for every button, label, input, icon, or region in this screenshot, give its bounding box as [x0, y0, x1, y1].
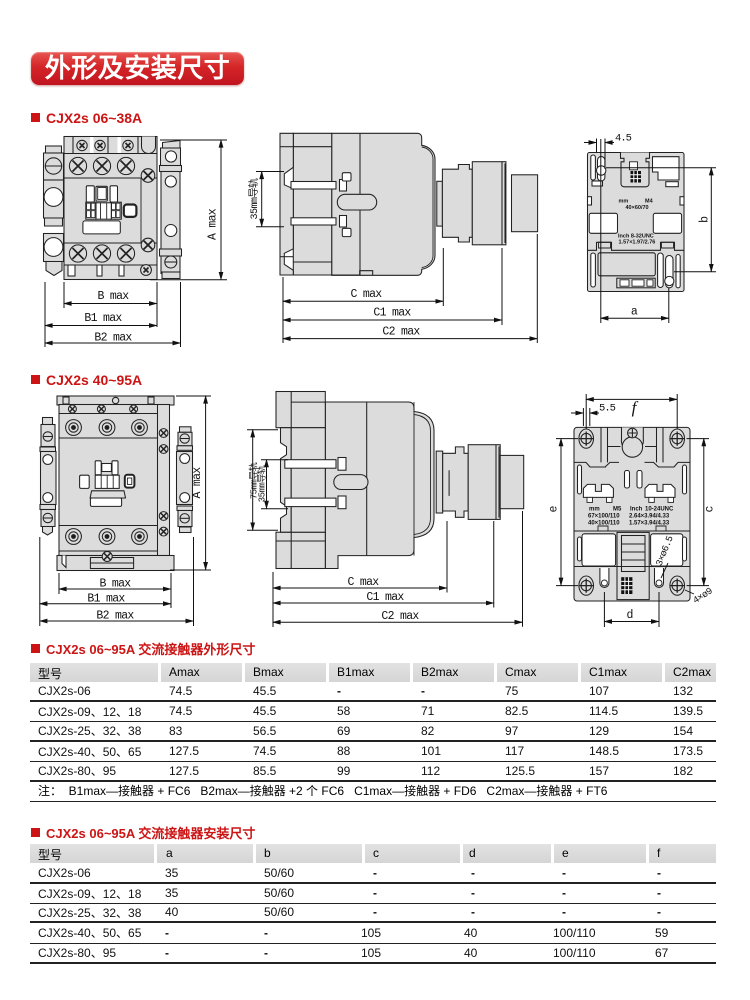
svg-text:B max: B max	[97, 290, 129, 303]
svg-text:35mm导轨: 35mm导轨	[248, 178, 261, 220]
svg-text:B max: B max	[99, 578, 131, 591]
svg-text:10-24UNC: 10-24UNC	[645, 507, 674, 513]
svg-text:67×100/110: 67×100/110	[588, 514, 620, 520]
svg-text:40×60/70: 40×60/70	[626, 205, 649, 211]
svg-text:35mm导轨: 35mm导轨	[256, 465, 268, 502]
svg-text:f: f	[632, 398, 639, 417]
svg-text:4.5: 4.5	[615, 133, 632, 145]
svg-text:A max: A max	[207, 208, 220, 240]
svg-text:5.5: 5.5	[599, 403, 616, 415]
svg-text:a: a	[631, 306, 638, 319]
svg-text:d: d	[627, 609, 634, 622]
svg-text:2.64×3.94/4.33: 2.64×3.94/4.33	[629, 514, 670, 520]
svg-text:mm: mm	[619, 199, 629, 205]
svg-text:C2 max: C2 max	[381, 610, 419, 623]
svg-text:A max: A max	[191, 467, 204, 499]
svg-text:c: c	[704, 505, 717, 512]
svg-text:C1 max: C1 max	[366, 591, 404, 604]
svg-text:mm: mm	[589, 507, 600, 513]
svg-text:B1 max: B1 max	[84, 312, 122, 325]
svg-text:B2 max: B2 max	[96, 610, 134, 623]
svg-text:Inch: Inch	[630, 507, 643, 513]
svg-text:1.57×1.97/2.76: 1.57×1.97/2.76	[619, 240, 656, 246]
svg-text:B1 max: B1 max	[87, 592, 125, 605]
svg-text:C max: C max	[347, 576, 379, 589]
svg-text:e: e	[548, 505, 561, 512]
svg-text:B2 max: B2 max	[94, 332, 132, 345]
svg-text:b: b	[699, 216, 712, 223]
svg-text:M4: M4	[645, 199, 654, 205]
svg-text:C1 max: C1 max	[373, 307, 411, 320]
svg-text:C2 max: C2 max	[382, 325, 420, 338]
svg-text:M5: M5	[613, 507, 622, 513]
svg-text:C max: C max	[350, 288, 382, 301]
svg-text:4×ø9: 4×ø9	[691, 585, 715, 606]
